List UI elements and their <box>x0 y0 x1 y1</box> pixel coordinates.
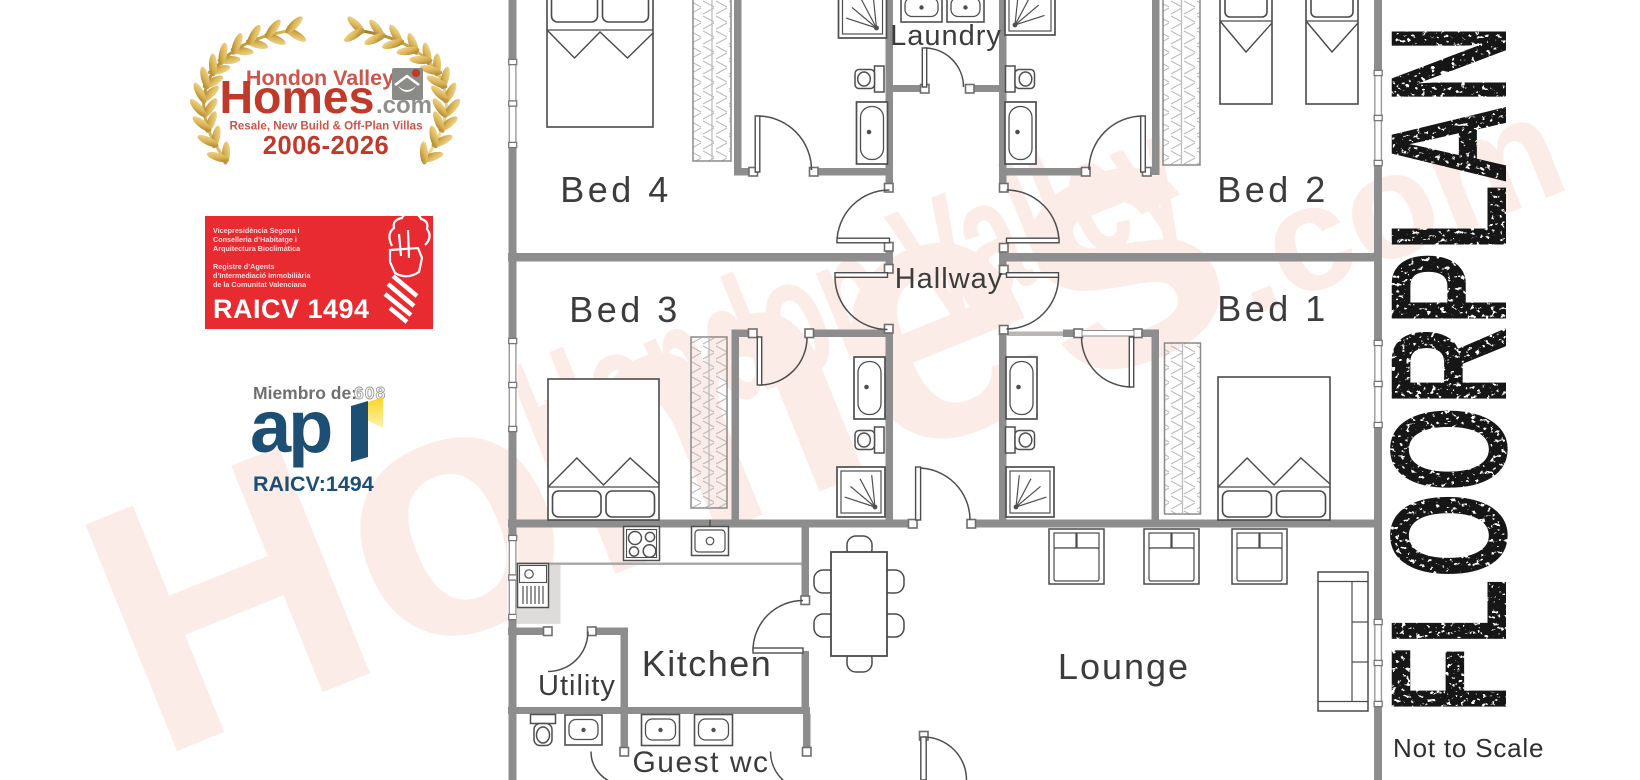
svg-text:FLOORPLAN: FLOORPLAN <box>1357 24 1542 714</box>
svg-text:Utility: Utility <box>538 670 616 702</box>
svg-text:Bed 4: Bed 4 <box>560 169 672 210</box>
svg-text:Registre d’Agents: Registre d’Agents <box>213 262 275 271</box>
svg-text:Conselleria d’Habitatge i: Conselleria d’Habitatge i <box>213 235 297 244</box>
svg-text:Bed 1: Bed 1 <box>1217 288 1329 329</box>
svg-text:d’Intermediació Immobiliària: d’Intermediació Immobiliària <box>213 271 311 280</box>
svg-text:Resale, New Build & Off-Plan V: Resale, New Build & Off-Plan Villas <box>229 120 422 133</box>
svg-text:ap: ap <box>250 385 331 468</box>
svg-text:Hallway: Hallway <box>895 263 1004 295</box>
svg-text:de la Comunitat Valenciana: de la Comunitat Valenciana <box>213 280 307 289</box>
svg-text:Arquitectura Bioclimàtica: Arquitectura Bioclimàtica <box>213 244 301 253</box>
svg-text:Vicepresidència Segona i: Vicepresidència Segona i <box>213 226 300 235</box>
svg-text:Homes: Homes <box>219 71 374 123</box>
svg-text:Lounge: Lounge <box>1058 646 1190 687</box>
svg-text:Bed 2: Bed 2 <box>1217 169 1329 210</box>
svg-text:Laundry: Laundry <box>890 20 1002 52</box>
svg-text:2006-2026: 2006-2026 <box>263 132 389 160</box>
svg-text:Bed 3: Bed 3 <box>569 289 681 330</box>
svg-text:Not to Scale: Not to Scale <box>1393 733 1544 763</box>
svg-text:RAICV:1494: RAICV:1494 <box>253 472 374 496</box>
svg-text:RAICV 1494: RAICV 1494 <box>213 294 370 324</box>
svg-text:Guest wc: Guest wc <box>632 746 769 779</box>
